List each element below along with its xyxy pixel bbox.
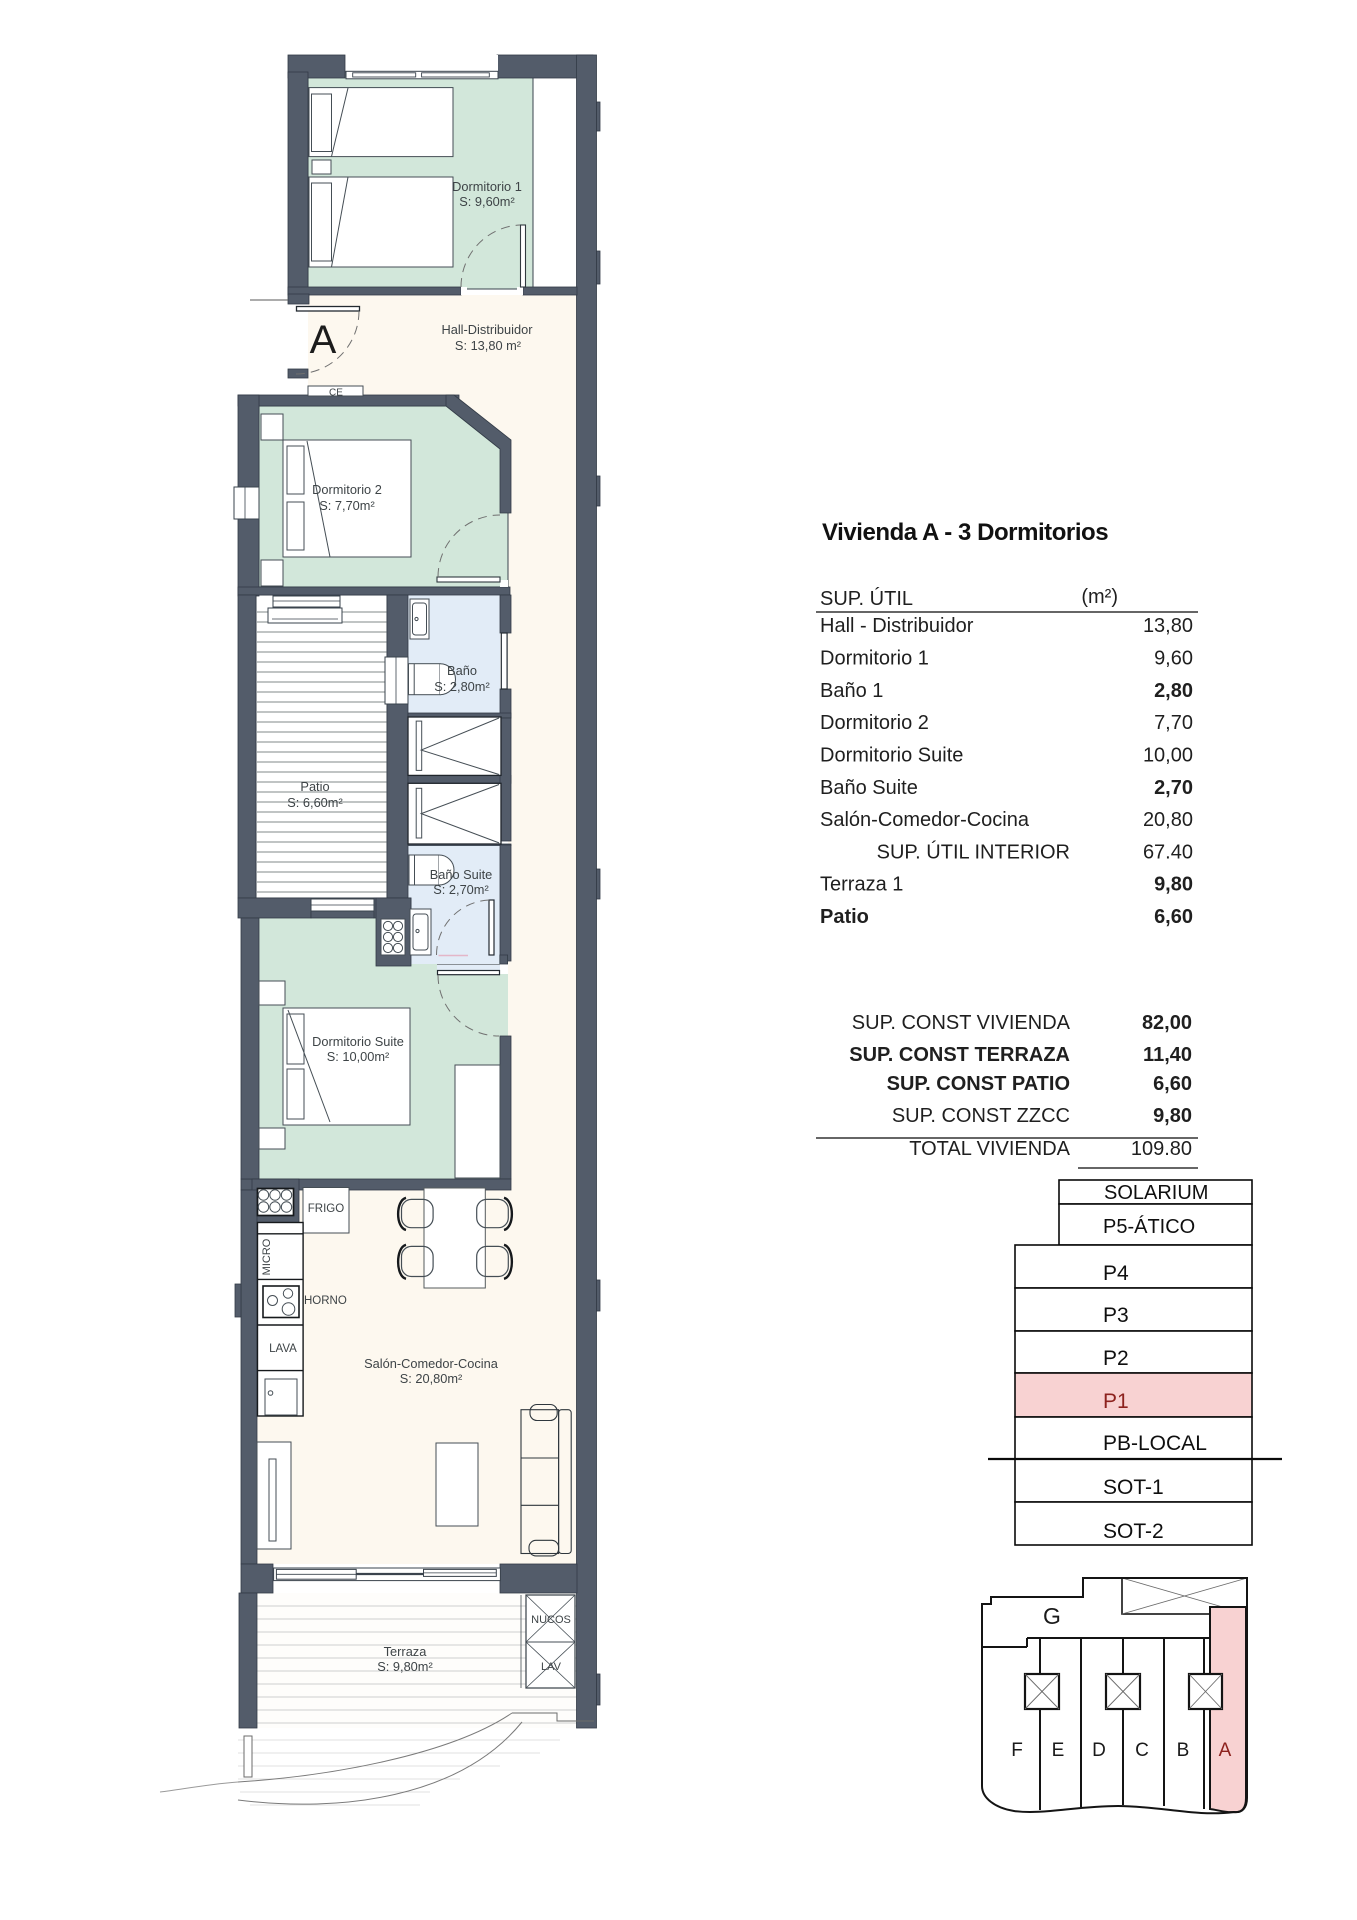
svg-text:109.80: 109.80	[1131, 1138, 1192, 1160]
svg-text:PB-LOCAL: PB-LOCAL	[1103, 1432, 1207, 1455]
svg-text:TOTAL VIVIENDA: TOTAL VIVIENDA	[909, 1138, 1070, 1160]
svg-text:2,70: 2,70	[1154, 777, 1193, 799]
svg-text:LAV: LAV	[541, 1661, 562, 1673]
svg-text:SUP. CONST PATIO: SUP. CONST PATIO	[887, 1073, 1070, 1095]
svg-text:G: G	[1043, 1603, 1061, 1629]
svg-text:Baño: Baño	[447, 663, 477, 678]
svg-text:FRIGO: FRIGO	[308, 1203, 344, 1215]
svg-text:B: B	[1177, 1740, 1190, 1761]
svg-text:6,60: 6,60	[1154, 906, 1193, 928]
svg-text:E: E	[1052, 1740, 1065, 1761]
svg-text:S: 9,60m²: S: 9,60m²	[459, 194, 515, 209]
svg-text:SUP. ÚTIL: SUP. ÚTIL	[820, 587, 913, 610]
svg-text:NUCOS: NUCOS	[531, 1614, 571, 1626]
svg-text:CE: CE	[329, 388, 343, 399]
svg-text:P2: P2	[1103, 1347, 1129, 1370]
svg-text:SOT-1: SOT-1	[1103, 1476, 1164, 1499]
svg-text:Dormitorio 1: Dormitorio 1	[820, 648, 929, 670]
svg-text:Dormitorio 2: Dormitorio 2	[312, 482, 382, 497]
svg-text:Baño Suite: Baño Suite	[820, 777, 918, 799]
svg-text:SUP. ÚTIL INTERIOR: SUP. ÚTIL INTERIOR	[877, 841, 1070, 864]
svg-text:Dormitorio Suite: Dormitorio Suite	[820, 745, 963, 767]
svg-text:6,60: 6,60	[1153, 1073, 1192, 1095]
svg-text:P3: P3	[1103, 1304, 1129, 1327]
svg-text:S: 6,60m²: S: 6,60m²	[287, 795, 343, 810]
svg-text:P5-ÁTICO: P5-ÁTICO	[1103, 1215, 1195, 1238]
svg-text:Salón-Comedor-Cocina: Salón-Comedor-Cocina	[364, 1356, 499, 1371]
svg-text:SOLARIUM: SOLARIUM	[1104, 1182, 1208, 1204]
svg-text:9,60: 9,60	[1154, 648, 1193, 670]
svg-text:S: 7,70m²: S: 7,70m²	[319, 498, 375, 513]
svg-text:HORNO: HORNO	[304, 1295, 347, 1307]
svg-text:Dormitorio 2: Dormitorio 2	[820, 712, 929, 734]
svg-text:9,80: 9,80	[1153, 1105, 1192, 1127]
svg-text:LAVA: LAVA	[269, 1343, 297, 1355]
svg-text:7,70: 7,70	[1154, 712, 1193, 734]
svg-text:Salón-Comedor-Cocina: Salón-Comedor-Cocina	[820, 809, 1030, 831]
svg-text:Dormitorio 1: Dormitorio 1	[452, 179, 522, 194]
svg-text:SUP. CONST ZZCC: SUP. CONST ZZCC	[892, 1105, 1070, 1127]
svg-text:C: C	[1135, 1740, 1149, 1761]
svg-text:S: 20,80m²: S: 20,80m²	[400, 1371, 463, 1386]
svg-text:D: D	[1092, 1740, 1106, 1761]
svg-text:Terraza 1: Terraza 1	[820, 874, 903, 896]
svg-text:Patio: Patio	[820, 906, 869, 928]
svg-text:SOT-2: SOT-2	[1103, 1520, 1164, 1543]
svg-text:Patio: Patio	[300, 779, 329, 794]
svg-text:P1: P1	[1103, 1390, 1129, 1413]
svg-text:2,80: 2,80	[1154, 680, 1193, 702]
svg-text:S: 10,00m²: S: 10,00m²	[327, 1049, 390, 1064]
svg-text:S: 9,80m²: S: 9,80m²	[377, 1659, 433, 1674]
svg-text:Baño 1: Baño 1	[820, 680, 883, 702]
svg-text:F: F	[1011, 1740, 1023, 1761]
svg-text:P4: P4	[1103, 1262, 1129, 1285]
svg-text:Vivienda A - 3 Dormitorios: Vivienda A - 3 Dormitorios	[822, 519, 1108, 546]
svg-text:A: A	[1219, 1740, 1232, 1761]
svg-text:20,80: 20,80	[1143, 809, 1193, 831]
svg-text:S: 13,80 m²: S: 13,80 m²	[455, 338, 522, 353]
svg-text:13,80: 13,80	[1143, 615, 1193, 637]
svg-text:S: 2,70m²: S: 2,70m²	[433, 882, 489, 897]
svg-text:Terraza: Terraza	[384, 1644, 428, 1659]
svg-text:SUP. CONST VIVIENDA: SUP. CONST VIVIENDA	[852, 1012, 1071, 1034]
svg-text:Dormitorio Suite: Dormitorio Suite	[312, 1034, 404, 1049]
svg-text:Hall-Distribuidor: Hall-Distribuidor	[441, 322, 533, 337]
svg-text:10,00: 10,00	[1143, 745, 1193, 767]
svg-text:(m²): (m²)	[1081, 586, 1118, 608]
svg-text:Hall - Distribuidor: Hall - Distribuidor	[820, 615, 974, 637]
svg-text:S: 2,80m²: S: 2,80m²	[434, 679, 490, 694]
svg-text:82,00: 82,00	[1142, 1012, 1192, 1034]
svg-text:SUP. CONST TERRAZA: SUP. CONST TERRAZA	[849, 1044, 1070, 1066]
svg-text:A: A	[310, 318, 337, 362]
svg-text:Baño Suite: Baño Suite	[430, 867, 493, 882]
svg-text:9,80: 9,80	[1154, 874, 1193, 896]
svg-text:11,40: 11,40	[1143, 1044, 1192, 1066]
svg-text:67.40: 67.40	[1143, 842, 1193, 864]
svg-text:MICRO: MICRO	[261, 1238, 273, 1275]
